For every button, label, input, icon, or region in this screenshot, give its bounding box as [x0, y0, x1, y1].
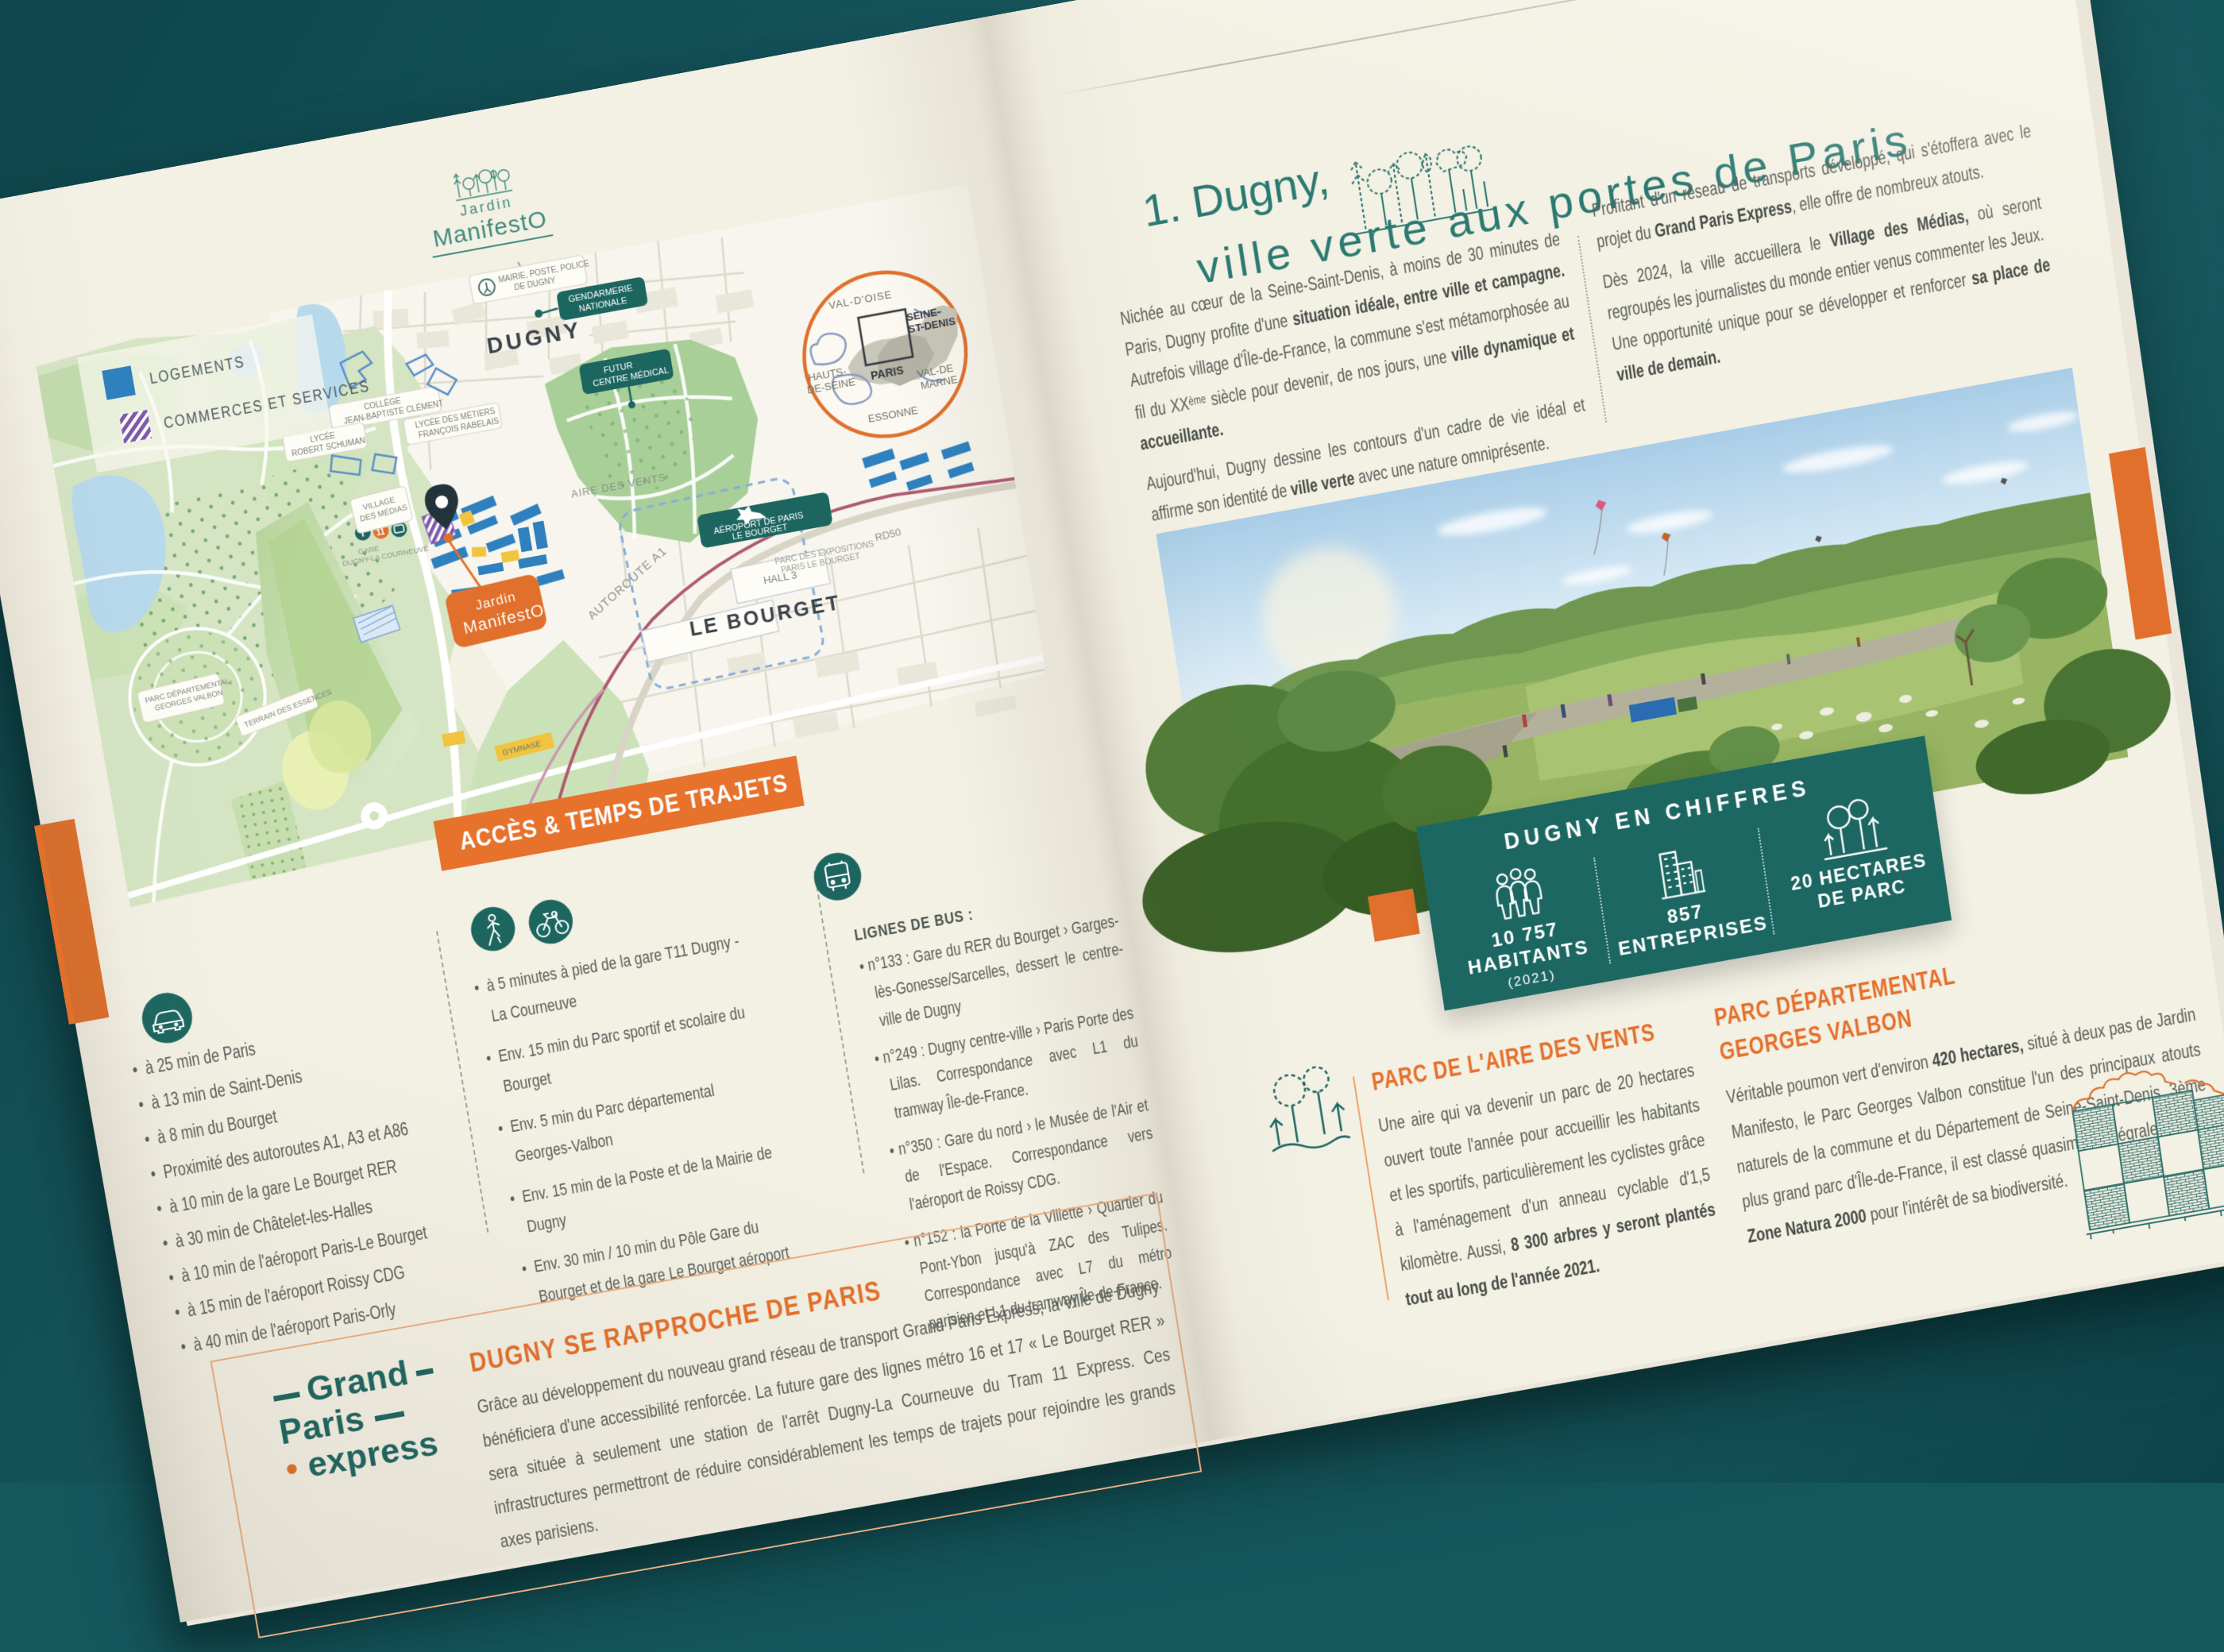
svg-text:11: 11 [376, 528, 386, 538]
